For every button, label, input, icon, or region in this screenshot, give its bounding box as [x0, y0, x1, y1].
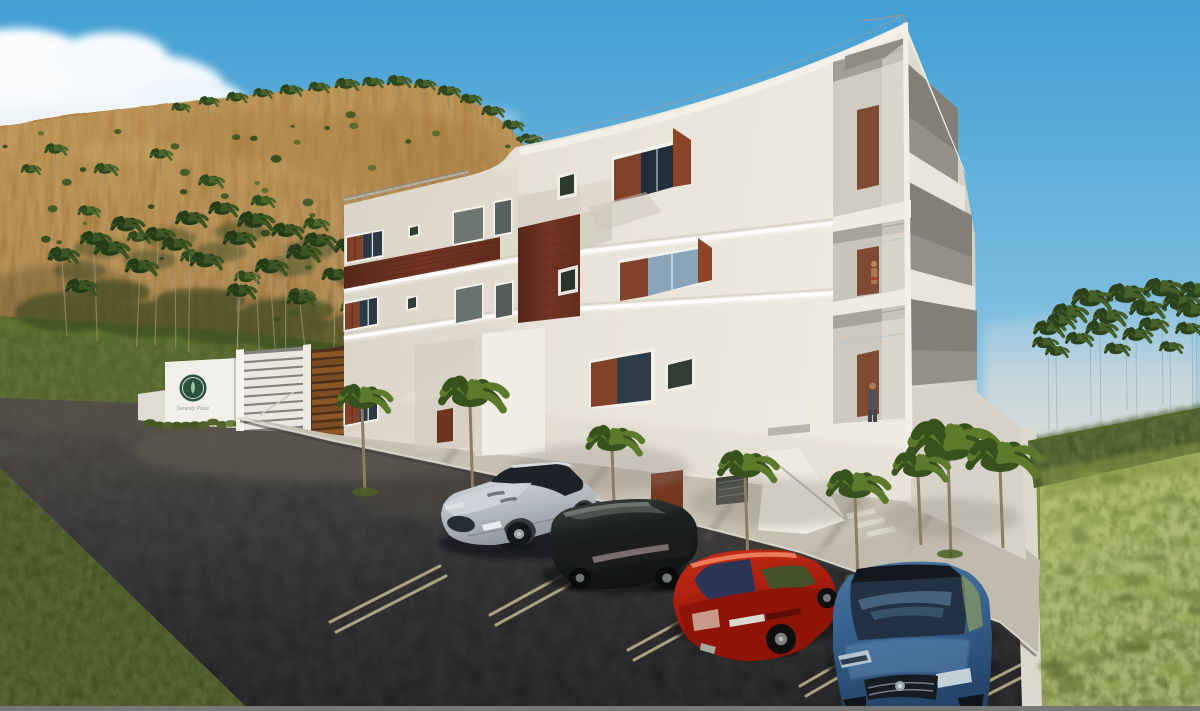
- svg-text:Serenity Place: Serenity Place: [177, 406, 209, 412]
